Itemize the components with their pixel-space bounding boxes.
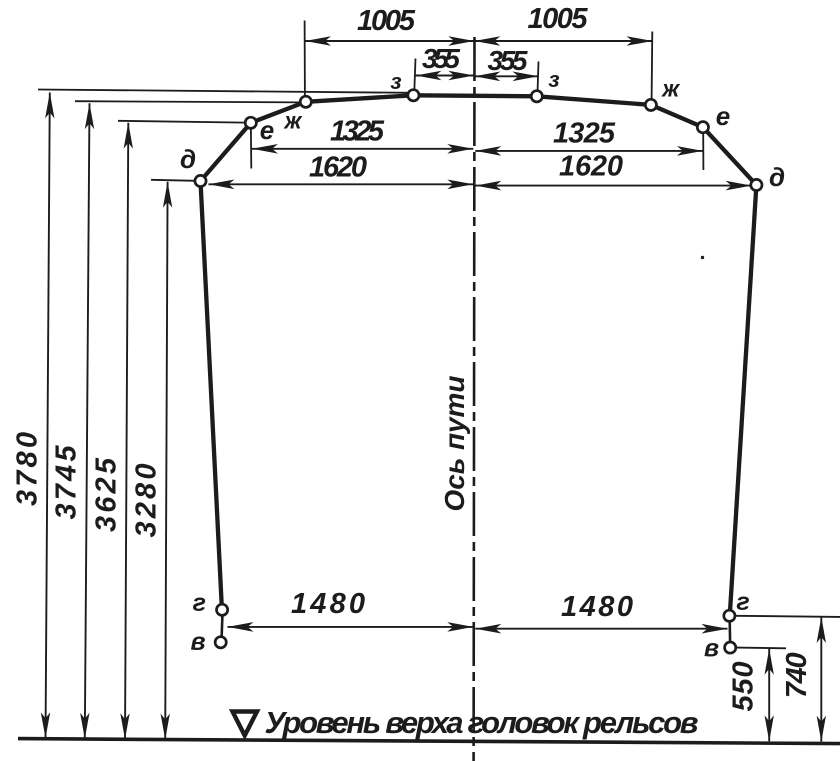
svg-text:355: 355 (488, 45, 528, 76)
svg-text:1620: 1620 (309, 152, 367, 184)
svg-text:з: з (390, 69, 401, 94)
svg-text:г: г (736, 588, 749, 616)
svg-text:ж: ж (660, 76, 680, 102)
svg-text:е: е (716, 101, 730, 131)
svg-text:1325: 1325 (553, 118, 616, 150)
svg-text:1325: 1325 (330, 116, 385, 148)
svg-text:в: в (704, 635, 719, 663)
svg-text:в: в (190, 628, 205, 656)
svg-text:Ось пути: Ось пути (439, 376, 470, 512)
svg-text:1005: 1005 (528, 3, 589, 35)
svg-text:д: д (769, 162, 785, 192)
svg-text:Уровень верха головок рельсов: Уровень верха головок рельсов (265, 705, 699, 740)
svg-text:г: г (193, 589, 206, 617)
svg-text:д: д (180, 144, 196, 174)
svg-text:550: 550 (728, 662, 760, 712)
svg-text:1620: 1620 (559, 151, 623, 183)
svg-text:740: 740 (781, 652, 813, 698)
svg-text:ж: ж (283, 108, 303, 134)
svg-text:е: е (260, 115, 274, 145)
svg-text:1005: 1005 (357, 5, 416, 37)
svg-text:355: 355 (422, 43, 460, 74)
svg-text:з: з (548, 67, 559, 92)
